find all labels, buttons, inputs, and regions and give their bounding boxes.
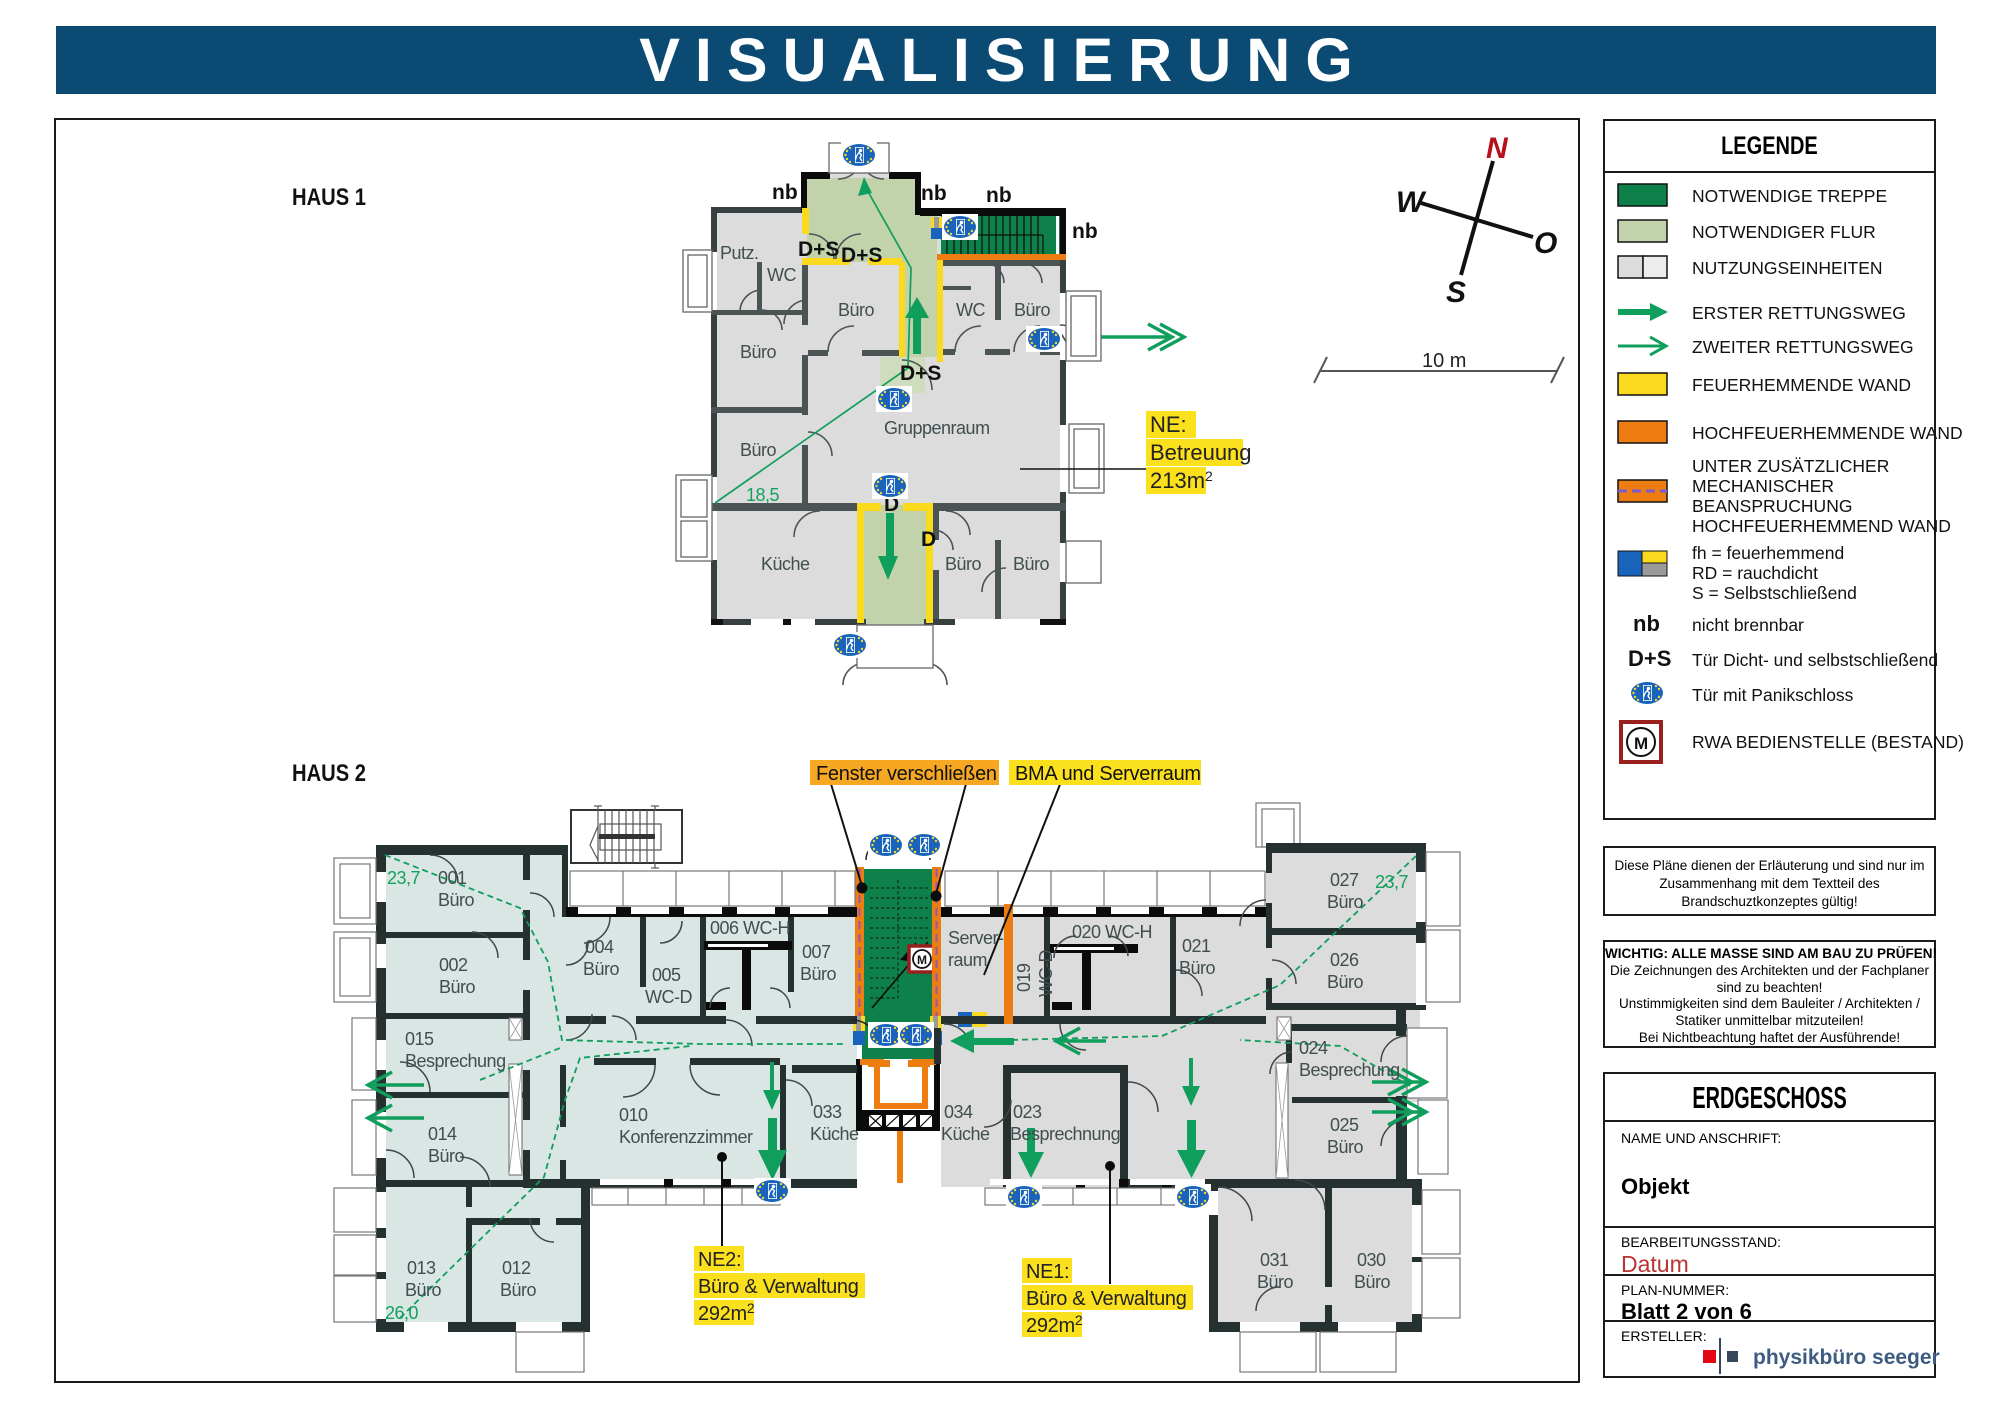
svg-text:D: D bbox=[921, 528, 936, 551]
svg-text:WC-D: WC-D bbox=[645, 987, 692, 1007]
svg-text:292m2: 292m2 bbox=[698, 1300, 755, 1325]
svg-text:004: 004 bbox=[585, 937, 614, 957]
svg-text:D+S: D+S bbox=[798, 238, 839, 261]
svg-text:005: 005 bbox=[652, 965, 681, 985]
svg-text:Büro: Büro bbox=[740, 342, 777, 362]
svg-text:Besprechung: Besprechung bbox=[405, 1051, 506, 1071]
svg-text:026: 026 bbox=[1330, 950, 1359, 970]
svg-text:Büro: Büro bbox=[1179, 958, 1216, 978]
svg-text:nb: nb bbox=[986, 184, 1012, 207]
svg-text:NE:: NE: bbox=[1150, 412, 1187, 437]
svg-text:Büro: Büro bbox=[439, 977, 476, 997]
svg-text:N: N bbox=[1486, 132, 1509, 165]
svg-text:23,7: 23,7 bbox=[1375, 872, 1409, 892]
svg-text:Büro & Verwaltung: Büro & Verwaltung bbox=[1026, 1288, 1187, 1310]
svg-text:007: 007 bbox=[802, 942, 831, 962]
svg-text:W: W bbox=[1396, 186, 1427, 219]
svg-text:213m2: 213m2 bbox=[1150, 468, 1213, 493]
svg-text:Büro & Verwaltung: Büro & Verwaltung bbox=[698, 1276, 859, 1298]
svg-text:034: 034 bbox=[944, 1102, 973, 1122]
svg-text:Büro: Büro bbox=[1257, 1272, 1294, 1292]
svg-text:BMA und Serverraum: BMA und Serverraum bbox=[1015, 763, 1201, 785]
svg-text:Gruppenraum: Gruppenraum bbox=[884, 418, 990, 438]
svg-text:Putz.: Putz. bbox=[720, 243, 759, 263]
svg-text:Büro: Büro bbox=[945, 554, 982, 574]
svg-text:nb: nb bbox=[921, 182, 947, 205]
svg-text:Büro: Büro bbox=[1327, 892, 1364, 912]
svg-text:Büro: Büro bbox=[1014, 300, 1051, 320]
svg-text:WC-D: WC-D bbox=[1036, 950, 1056, 997]
svg-text:S: S bbox=[1446, 276, 1466, 309]
svg-text:024: 024 bbox=[1299, 1038, 1328, 1058]
svg-text:raum: raum bbox=[948, 950, 987, 970]
svg-text:013: 013 bbox=[407, 1258, 436, 1278]
svg-text:18,5: 18,5 bbox=[746, 485, 780, 505]
svg-text:Fenster verschließen: Fenster verschließen bbox=[816, 763, 997, 785]
svg-text:021: 021 bbox=[1182, 936, 1211, 956]
svg-text:Büro: Büro bbox=[428, 1146, 465, 1166]
svg-text:HAUS 1: HAUS 1 bbox=[292, 184, 366, 211]
svg-text:D+S: D+S bbox=[841, 244, 882, 267]
svg-text:WC: WC bbox=[767, 265, 796, 285]
svg-text:Büro: Büro bbox=[438, 890, 475, 910]
svg-text:M: M bbox=[917, 953, 927, 967]
svg-text:nb: nb bbox=[1072, 220, 1098, 243]
svg-text:033: 033 bbox=[813, 1102, 842, 1122]
svg-text:Besprechnung: Besprechnung bbox=[1010, 1124, 1120, 1144]
svg-text:Büro: Büro bbox=[583, 959, 620, 979]
svg-text:26,0: 26,0 bbox=[385, 1303, 419, 1323]
svg-text:Büro: Büro bbox=[1354, 1272, 1391, 1292]
svg-text:Büro: Büro bbox=[740, 440, 777, 460]
svg-text:010: 010 bbox=[619, 1105, 648, 1125]
svg-text:025: 025 bbox=[1330, 1115, 1359, 1135]
svg-text:Konferenzzimmer: Konferenzzimmer bbox=[619, 1127, 753, 1147]
svg-text:HAUS 2: HAUS 2 bbox=[292, 760, 366, 787]
svg-text:002: 002 bbox=[439, 955, 468, 975]
svg-text:030: 030 bbox=[1357, 1250, 1386, 1270]
svg-text:10 m: 10 m bbox=[1422, 350, 1466, 372]
svg-text:023: 023 bbox=[1013, 1102, 1042, 1122]
svg-text:Besprechung: Besprechung bbox=[1299, 1060, 1400, 1080]
svg-text:Büro: Büro bbox=[800, 964, 837, 984]
svg-text:Betreuung: Betreuung bbox=[1150, 440, 1252, 465]
svg-text:nb: nb bbox=[772, 181, 798, 204]
svg-text:NE2:: NE2: bbox=[698, 1249, 741, 1271]
svg-text:014: 014 bbox=[428, 1124, 457, 1144]
svg-text:23,7: 23,7 bbox=[387, 868, 421, 888]
svg-text:O: O bbox=[1534, 227, 1557, 260]
svg-text:001: 001 bbox=[438, 868, 467, 888]
svg-text:292m2: 292m2 bbox=[1026, 1312, 1083, 1337]
svg-text:027: 027 bbox=[1330, 870, 1359, 890]
svg-text:Büro: Büro bbox=[1327, 972, 1364, 992]
svg-text:D+S: D+S bbox=[900, 362, 941, 385]
svg-text:019: 019 bbox=[1014, 963, 1034, 992]
svg-text:015: 015 bbox=[405, 1029, 434, 1049]
svg-text:NE1:: NE1: bbox=[1026, 1261, 1069, 1283]
svg-text:Küche: Küche bbox=[941, 1124, 990, 1144]
svg-text:Büro: Büro bbox=[405, 1280, 442, 1300]
svg-text:WC: WC bbox=[956, 300, 985, 320]
svg-text:012: 012 bbox=[502, 1258, 531, 1278]
svg-text:Küche: Küche bbox=[761, 554, 810, 574]
svg-text:031: 031 bbox=[1260, 1250, 1289, 1270]
svg-text:006 WC-H: 006 WC-H bbox=[710, 918, 790, 938]
svg-text:Büro: Büro bbox=[838, 300, 875, 320]
svg-text:020 WC-H: 020 WC-H bbox=[1072, 922, 1152, 942]
svg-text:Büro: Büro bbox=[1013, 554, 1050, 574]
svg-text:Büro: Büro bbox=[500, 1280, 537, 1300]
svg-text:Küche: Küche bbox=[810, 1124, 859, 1144]
svg-text:Büro: Büro bbox=[1327, 1137, 1364, 1157]
